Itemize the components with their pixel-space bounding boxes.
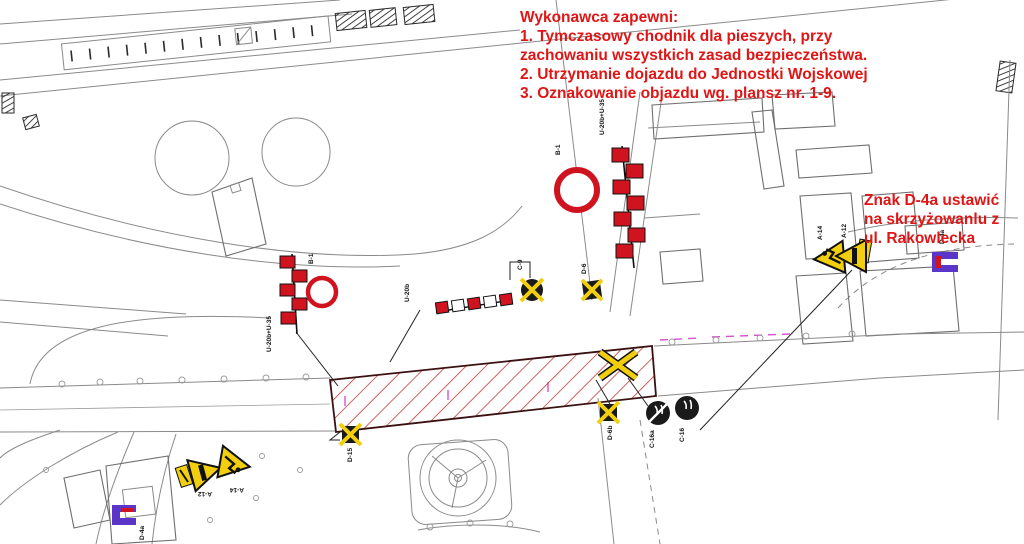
tree-dot bbox=[713, 337, 719, 343]
railway-area bbox=[0, 0, 1024, 130]
d4a-left-label: D-4a bbox=[139, 526, 146, 540]
right-boundary bbox=[998, 60, 1010, 420]
fountain-plaza bbox=[407, 439, 540, 532]
left-lane-line bbox=[0, 300, 186, 314]
tree-dot bbox=[254, 496, 259, 501]
barrier-block bbox=[435, 301, 448, 314]
fence-line bbox=[644, 214, 700, 218]
barrier-mid-label: U-20b bbox=[404, 284, 411, 302]
road-north-edge-right bbox=[654, 332, 1024, 346]
left-curb bbox=[30, 316, 270, 384]
barrier-block bbox=[280, 256, 295, 268]
tree-dot bbox=[137, 378, 143, 384]
crossed-sign-d6: D-6 bbox=[581, 263, 602, 300]
road-north-edge-left bbox=[0, 378, 330, 388]
courtyard-inner bbox=[122, 486, 155, 517]
leader-line bbox=[330, 432, 340, 440]
d4a-note-line: na skrzyżowanlu z bbox=[864, 211, 999, 228]
plaza-outline bbox=[407, 439, 512, 526]
building bbox=[64, 470, 110, 528]
barrier-right-label: U-20b+U-35 bbox=[599, 99, 606, 135]
barrier-block bbox=[616, 244, 633, 258]
rail-line bbox=[0, 0, 1024, 96]
road-south-edge-right bbox=[658, 370, 1024, 396]
bottom-left-block bbox=[44, 454, 303, 544]
fork-edge bbox=[152, 434, 176, 544]
d4a-red-bar bbox=[936, 256, 941, 268]
c16-sign-face bbox=[675, 396, 699, 420]
leader-line bbox=[700, 270, 852, 430]
building bbox=[860, 266, 959, 336]
left-lane-line bbox=[0, 322, 168, 336]
warning-triangles-left: A-12 A-14 bbox=[175, 446, 252, 497]
contractor-note-line: zachowaniu wszystkich zasad bezpieczeńst… bbox=[520, 47, 867, 64]
contractor-note-line: 1. Tymczasowy chodnik dla pieszych, przy bbox=[520, 28, 833, 45]
barrier-block bbox=[626, 164, 643, 178]
tree-dot bbox=[208, 518, 213, 523]
barrier-mid-group: U-20b bbox=[390, 284, 513, 362]
curve-road-south bbox=[0, 204, 400, 267]
hatched-building bbox=[335, 10, 367, 30]
a14-left-sign bbox=[217, 446, 252, 483]
barrier-left-label: U-20b+U-35 bbox=[266, 316, 273, 352]
contractor-note: Wykonawca zapewni: 1. Tymczasowy chodnik… bbox=[520, 9, 868, 102]
fork-edge bbox=[96, 432, 134, 544]
b1-sign-right bbox=[557, 170, 597, 210]
a14-right-label: A-14 bbox=[817, 226, 824, 240]
tree-dot bbox=[669, 339, 675, 345]
edge-building bbox=[2, 93, 14, 113]
tree-dot bbox=[97, 379, 103, 385]
d15-label: D-15 bbox=[347, 448, 354, 462]
barrier-block bbox=[467, 297, 480, 310]
d4a-note-line: ul. Rakowlecka bbox=[864, 230, 976, 247]
edge-building bbox=[996, 61, 1016, 93]
d6b-label: D-6b bbox=[607, 426, 614, 440]
barrier-block bbox=[292, 298, 307, 310]
contractor-note-line: 2. Utrzymanie dojazdu do Jednostki Wojsk… bbox=[520, 66, 868, 83]
platform bbox=[61, 16, 330, 70]
fountain-spoke bbox=[452, 478, 458, 508]
plaza-path bbox=[418, 525, 540, 532]
tree-dot bbox=[507, 521, 513, 527]
barrier-block-white bbox=[451, 299, 464, 312]
leader-line bbox=[390, 310, 420, 362]
d4a-symbol bbox=[932, 252, 958, 272]
d4a-red-bar bbox=[121, 508, 133, 512]
contractor-note-line: Wykonawca zapewni: bbox=[520, 9, 678, 26]
road-south-edge-left bbox=[0, 431, 336, 432]
d4a-note-line: Znak D-4a ustawić bbox=[864, 192, 1000, 209]
barrier-block-white bbox=[483, 295, 496, 308]
barrier-block bbox=[292, 270, 307, 282]
warning-triangles-right: A-14 A-12 bbox=[700, 224, 872, 430]
road-centerline-left bbox=[0, 404, 330, 410]
c9-label: C-9 bbox=[517, 259, 524, 270]
fence-line bbox=[648, 122, 760, 128]
b1-left-label: B-1 bbox=[308, 253, 315, 264]
tank-circle bbox=[262, 118, 330, 186]
barrier-block bbox=[614, 212, 631, 226]
building bbox=[652, 98, 764, 139]
tree-dot bbox=[260, 454, 265, 459]
barrier-block bbox=[628, 228, 645, 242]
a12-left-label: A-12 bbox=[198, 490, 212, 497]
contractor-note-line: 3. Oznakowanie objazdu wg. plansz nr. 1-… bbox=[520, 85, 836, 102]
building bbox=[660, 249, 703, 284]
barrier-right-group: U-20b+U-35 B-1 bbox=[555, 99, 645, 268]
bar-glyph bbox=[852, 248, 857, 264]
tank-circle bbox=[155, 121, 229, 195]
platform-outline bbox=[61, 16, 330, 70]
b1-sign-left bbox=[308, 278, 336, 306]
tree-dot bbox=[298, 468, 303, 473]
building-left bbox=[212, 178, 266, 256]
barrier-left-group: U-20b+U-35 B-1 bbox=[266, 253, 338, 386]
magenta-marking bbox=[660, 338, 700, 340]
fountain-spoke bbox=[432, 456, 458, 478]
crossed-sign-c9: C-9 bbox=[510, 259, 543, 301]
c16-label: C-16 bbox=[679, 428, 686, 442]
barrier-block bbox=[280, 284, 295, 296]
fork-edge bbox=[0, 432, 118, 505]
barrier-block bbox=[613, 180, 630, 194]
tree-dot bbox=[427, 524, 433, 530]
hatched-building bbox=[403, 4, 435, 24]
crossed-sign-d15: D-15 bbox=[330, 424, 361, 462]
barrier-block bbox=[612, 148, 629, 162]
d4a-note: Znak D-4a ustawić na skrzyżowanlu z ul. … bbox=[864, 192, 1000, 247]
hatched-building bbox=[369, 8, 397, 28]
d4a-sign-left: D-4a bbox=[112, 505, 146, 540]
site-plan-canvas: U-20b+U-35 B-1 U-20b U-20b+U-35 B-1 C-9 bbox=[0, 0, 1024, 544]
fork-edge bbox=[0, 430, 60, 458]
edge-building bbox=[23, 114, 40, 129]
magenta-marking bbox=[712, 334, 790, 337]
fountain-spoke bbox=[458, 460, 486, 478]
c16a-label: C-16a bbox=[649, 430, 656, 448]
tree-dot bbox=[757, 335, 763, 341]
barrier-block bbox=[627, 196, 644, 210]
b1-right-label: B-1 bbox=[555, 144, 562, 155]
d6-label: D-6 bbox=[581, 263, 588, 274]
site-plan-page: U-20b+U-35 B-1 U-20b U-20b+U-35 B-1 C-9 bbox=[0, 0, 1024, 544]
building bbox=[796, 145, 872, 178]
a12-right-label: A-12 bbox=[841, 224, 848, 238]
a14-left-label: A-14 bbox=[230, 486, 244, 493]
barrier-block bbox=[281, 312, 296, 324]
barrier-block bbox=[499, 293, 512, 306]
